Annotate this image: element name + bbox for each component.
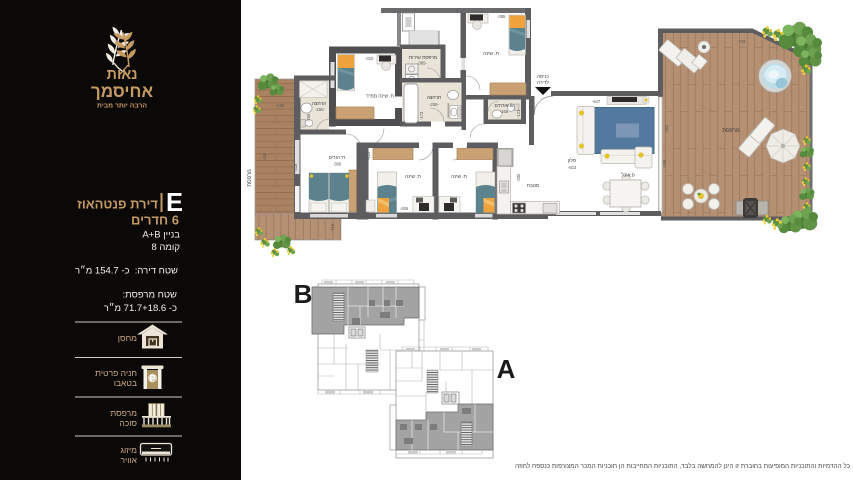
svg-text:כל ההדמיות והתוכניות המופיעות: כל ההדמיות והתוכניות המופיעות בחוברת זו …: [515, 462, 850, 470]
